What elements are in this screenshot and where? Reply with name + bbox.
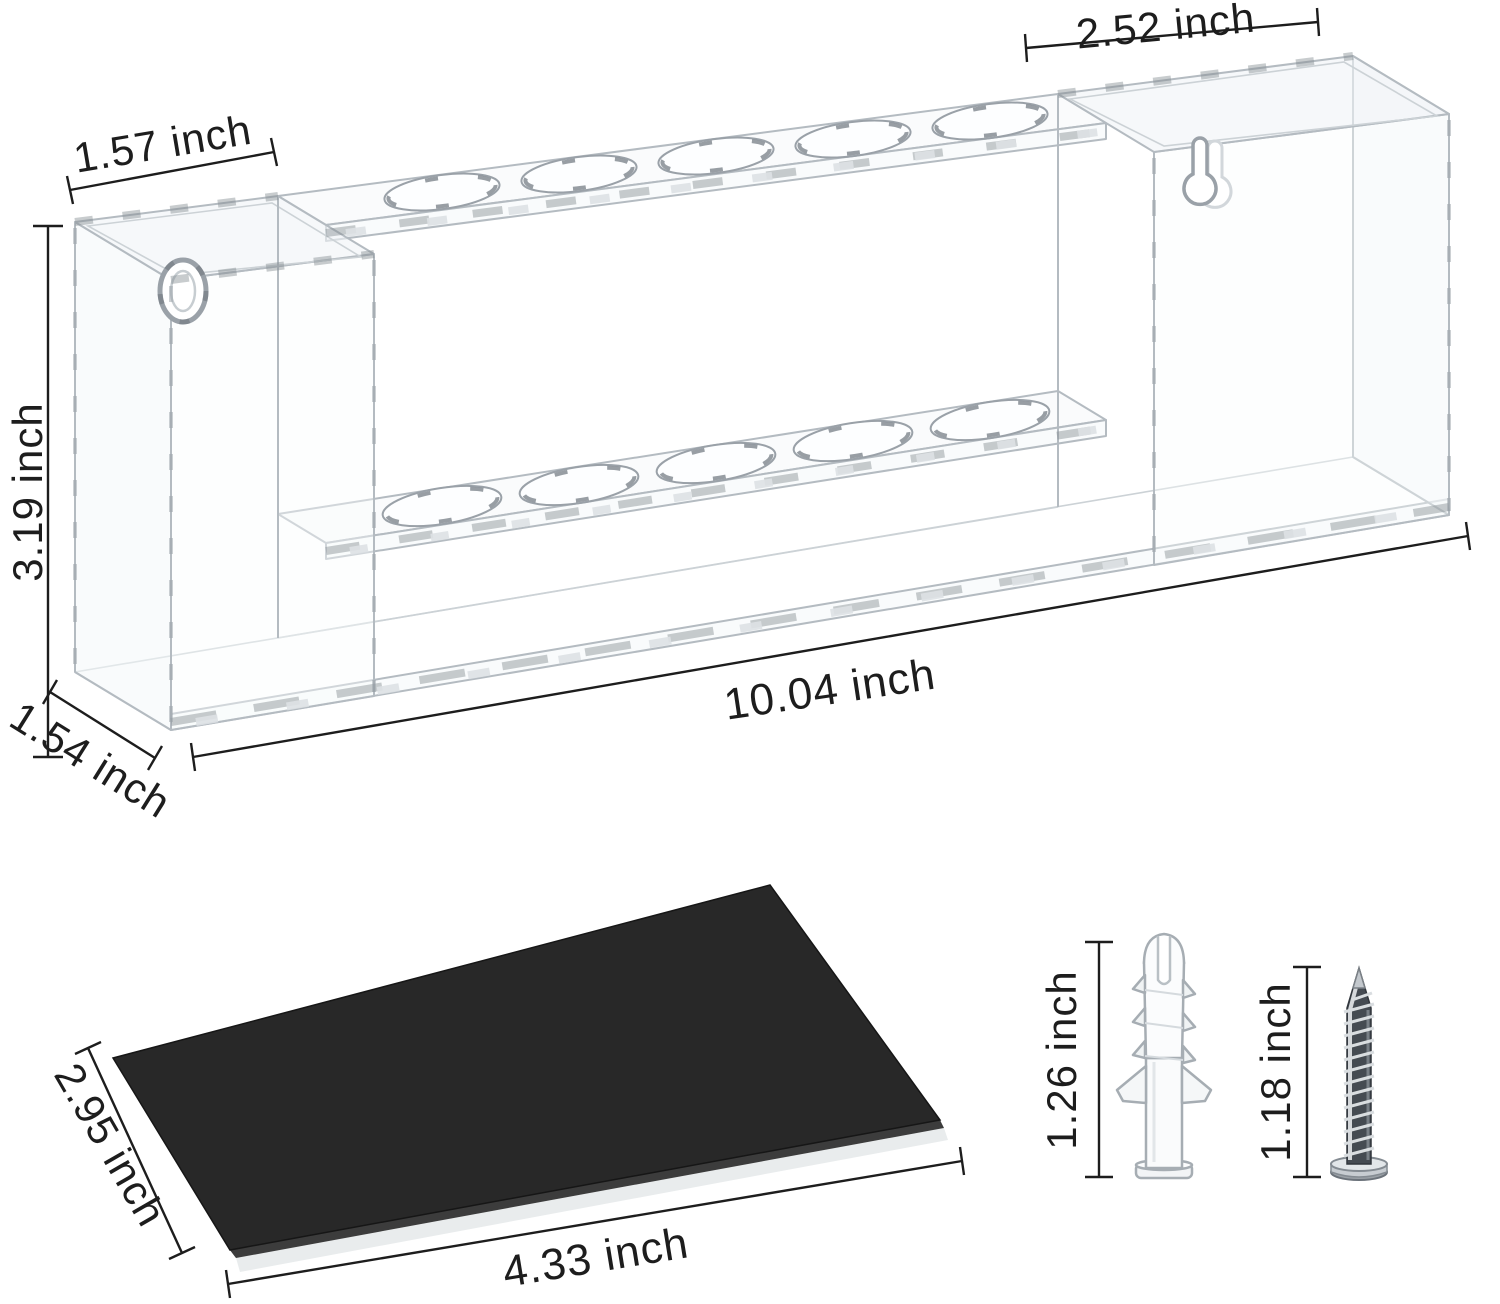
dim-anchor-length: 1.26 inch [1038,942,1113,1177]
dim-screw-length: 1.18 inch [1252,967,1321,1177]
wall-anchor-drawing: 1.26 inch [1038,934,1211,1178]
dim-height: 3.19 inch [4,226,63,757]
label-screw-length: 1.18 inch [1252,982,1299,1161]
diagram-canvas: 1.57 inch 2.52 inch 3.19 inch 1.54 inch … [0,0,1500,1304]
label-sheet-length: 4.33 inch [499,1218,692,1297]
top-shelf [278,94,1106,241]
left-box-side-face [75,222,171,730]
sheet-face [113,885,940,1250]
screw-drawing: 1.18 inch [1252,967,1387,1180]
lower-shelf-holes [380,393,1052,533]
anchor-split-slot [1158,936,1170,984]
adhesive-sheet-drawing: 2.95 inch 4.33 inch [45,885,964,1298]
label-anchor-length: 1.26 inch [1038,970,1085,1149]
lower-shelf [278,391,1106,559]
acrylic-holder-drawing [75,56,1449,730]
label-height: 3.19 inch [4,402,51,581]
left-box-front-face [171,254,374,730]
product-dimension-diagram: 1.57 inch 2.52 inch 3.19 inch 1.54 inch … [0,0,1500,1304]
anchor-right-wing [1182,1066,1211,1103]
label-right-section-width: 2.52 inch [1074,0,1257,58]
label-left-section-width: 1.57 inch [70,106,255,182]
label-overall-length: 10.04 inch [721,650,939,730]
dim-right-section-width: 2.52 inch [1025,0,1319,62]
right-box [1058,56,1449,565]
left-keyhole [160,260,206,322]
dim-left-section-width: 1.57 inch [67,106,277,204]
anchor-left-wing [1117,1066,1146,1103]
dim-overall-length: 10.04 inch [191,522,1470,771]
